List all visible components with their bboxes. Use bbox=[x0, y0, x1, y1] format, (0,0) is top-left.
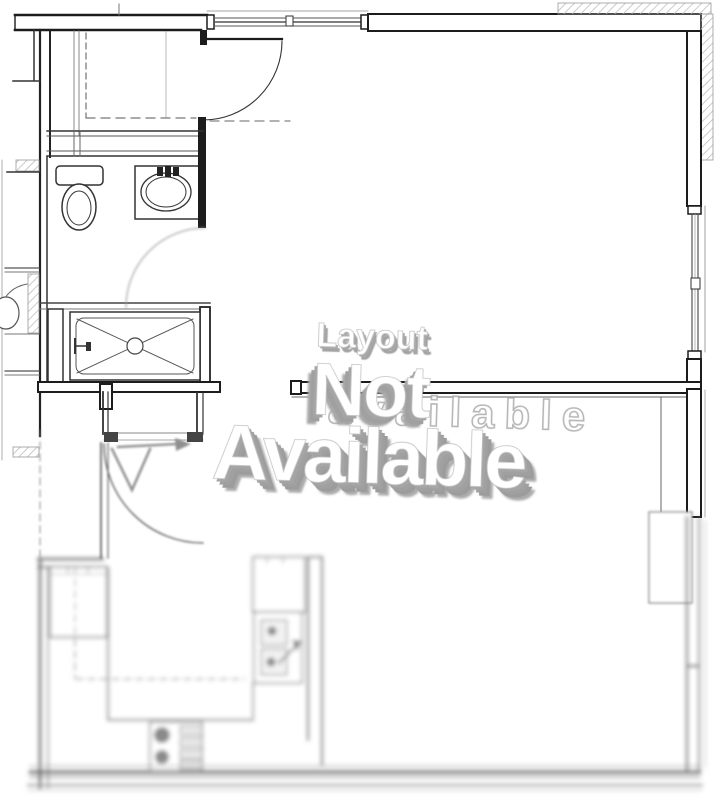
island-cabinet bbox=[253, 557, 305, 612]
top-right-wall bbox=[368, 3, 713, 206]
bathroom-door-swing-icon bbox=[126, 228, 205, 307]
shower-tray-icon bbox=[70, 312, 200, 380]
toilet-icon bbox=[56, 166, 103, 230]
plan-kitchen-blur bbox=[28, 517, 705, 790]
closet bbox=[74, 31, 290, 135]
island-wall bbox=[308, 557, 322, 765]
floor-plan-screenshot: available Layout Not Available bbox=[0, 0, 728, 800]
top-wall bbox=[15, 4, 207, 30]
hatched-wall-icon bbox=[558, 3, 711, 14]
vanity-sink-icon bbox=[135, 135, 206, 228]
shower-room bbox=[40, 303, 210, 385]
entry-door-swing-icon bbox=[104, 444, 203, 543]
hall-wall bbox=[40, 430, 108, 558]
vestibule bbox=[38, 382, 220, 442]
plan-mid-blur bbox=[40, 228, 692, 603]
bottom-wall bbox=[28, 766, 702, 790]
left-wall-fragments bbox=[0, 30, 50, 460]
range-icon bbox=[150, 722, 202, 771]
bathroom-plumbing-wall bbox=[47, 131, 203, 156]
right-window window-icon bbox=[687, 206, 705, 389]
top-window window-icon bbox=[207, 11, 368, 29]
refrigerator-icon bbox=[50, 567, 107, 637]
hatched-wall-icon bbox=[701, 14, 713, 160]
entry-arrow-icon bbox=[112, 438, 191, 490]
utility-box bbox=[649, 512, 692, 603]
closet-door door-swing-icon bbox=[198, 30, 282, 135]
plan-upper bbox=[0, 3, 713, 517]
kitchen-sink-icon bbox=[253, 612, 302, 720]
floor-plan-drawing bbox=[0, 0, 728, 800]
living-room-wall bbox=[291, 381, 705, 517]
